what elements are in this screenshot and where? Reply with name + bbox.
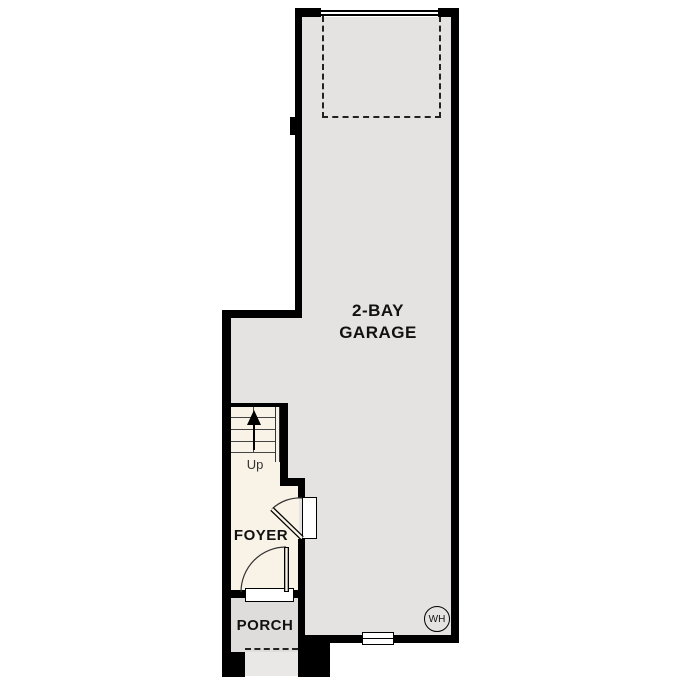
front-door-arc (241, 547, 286, 592)
garage-label-line1: 2-BAY (318, 300, 438, 322)
stairs-up-label: Up (240, 457, 270, 472)
porch-label: PORCH (233, 617, 297, 634)
foyer-label: FOYER (228, 527, 294, 544)
garage-label: 2-BAY GARAGE (318, 300, 438, 344)
water-heater-symbol: WH (424, 606, 450, 632)
garage-label-line2: GARAGE (318, 322, 438, 344)
floor-plan: 2-BAY GARAGE FOYER PORCH Up WH (0, 0, 687, 687)
garage-entry-door-arc (272, 498, 302, 509)
water-heater-label: WH (429, 614, 446, 625)
